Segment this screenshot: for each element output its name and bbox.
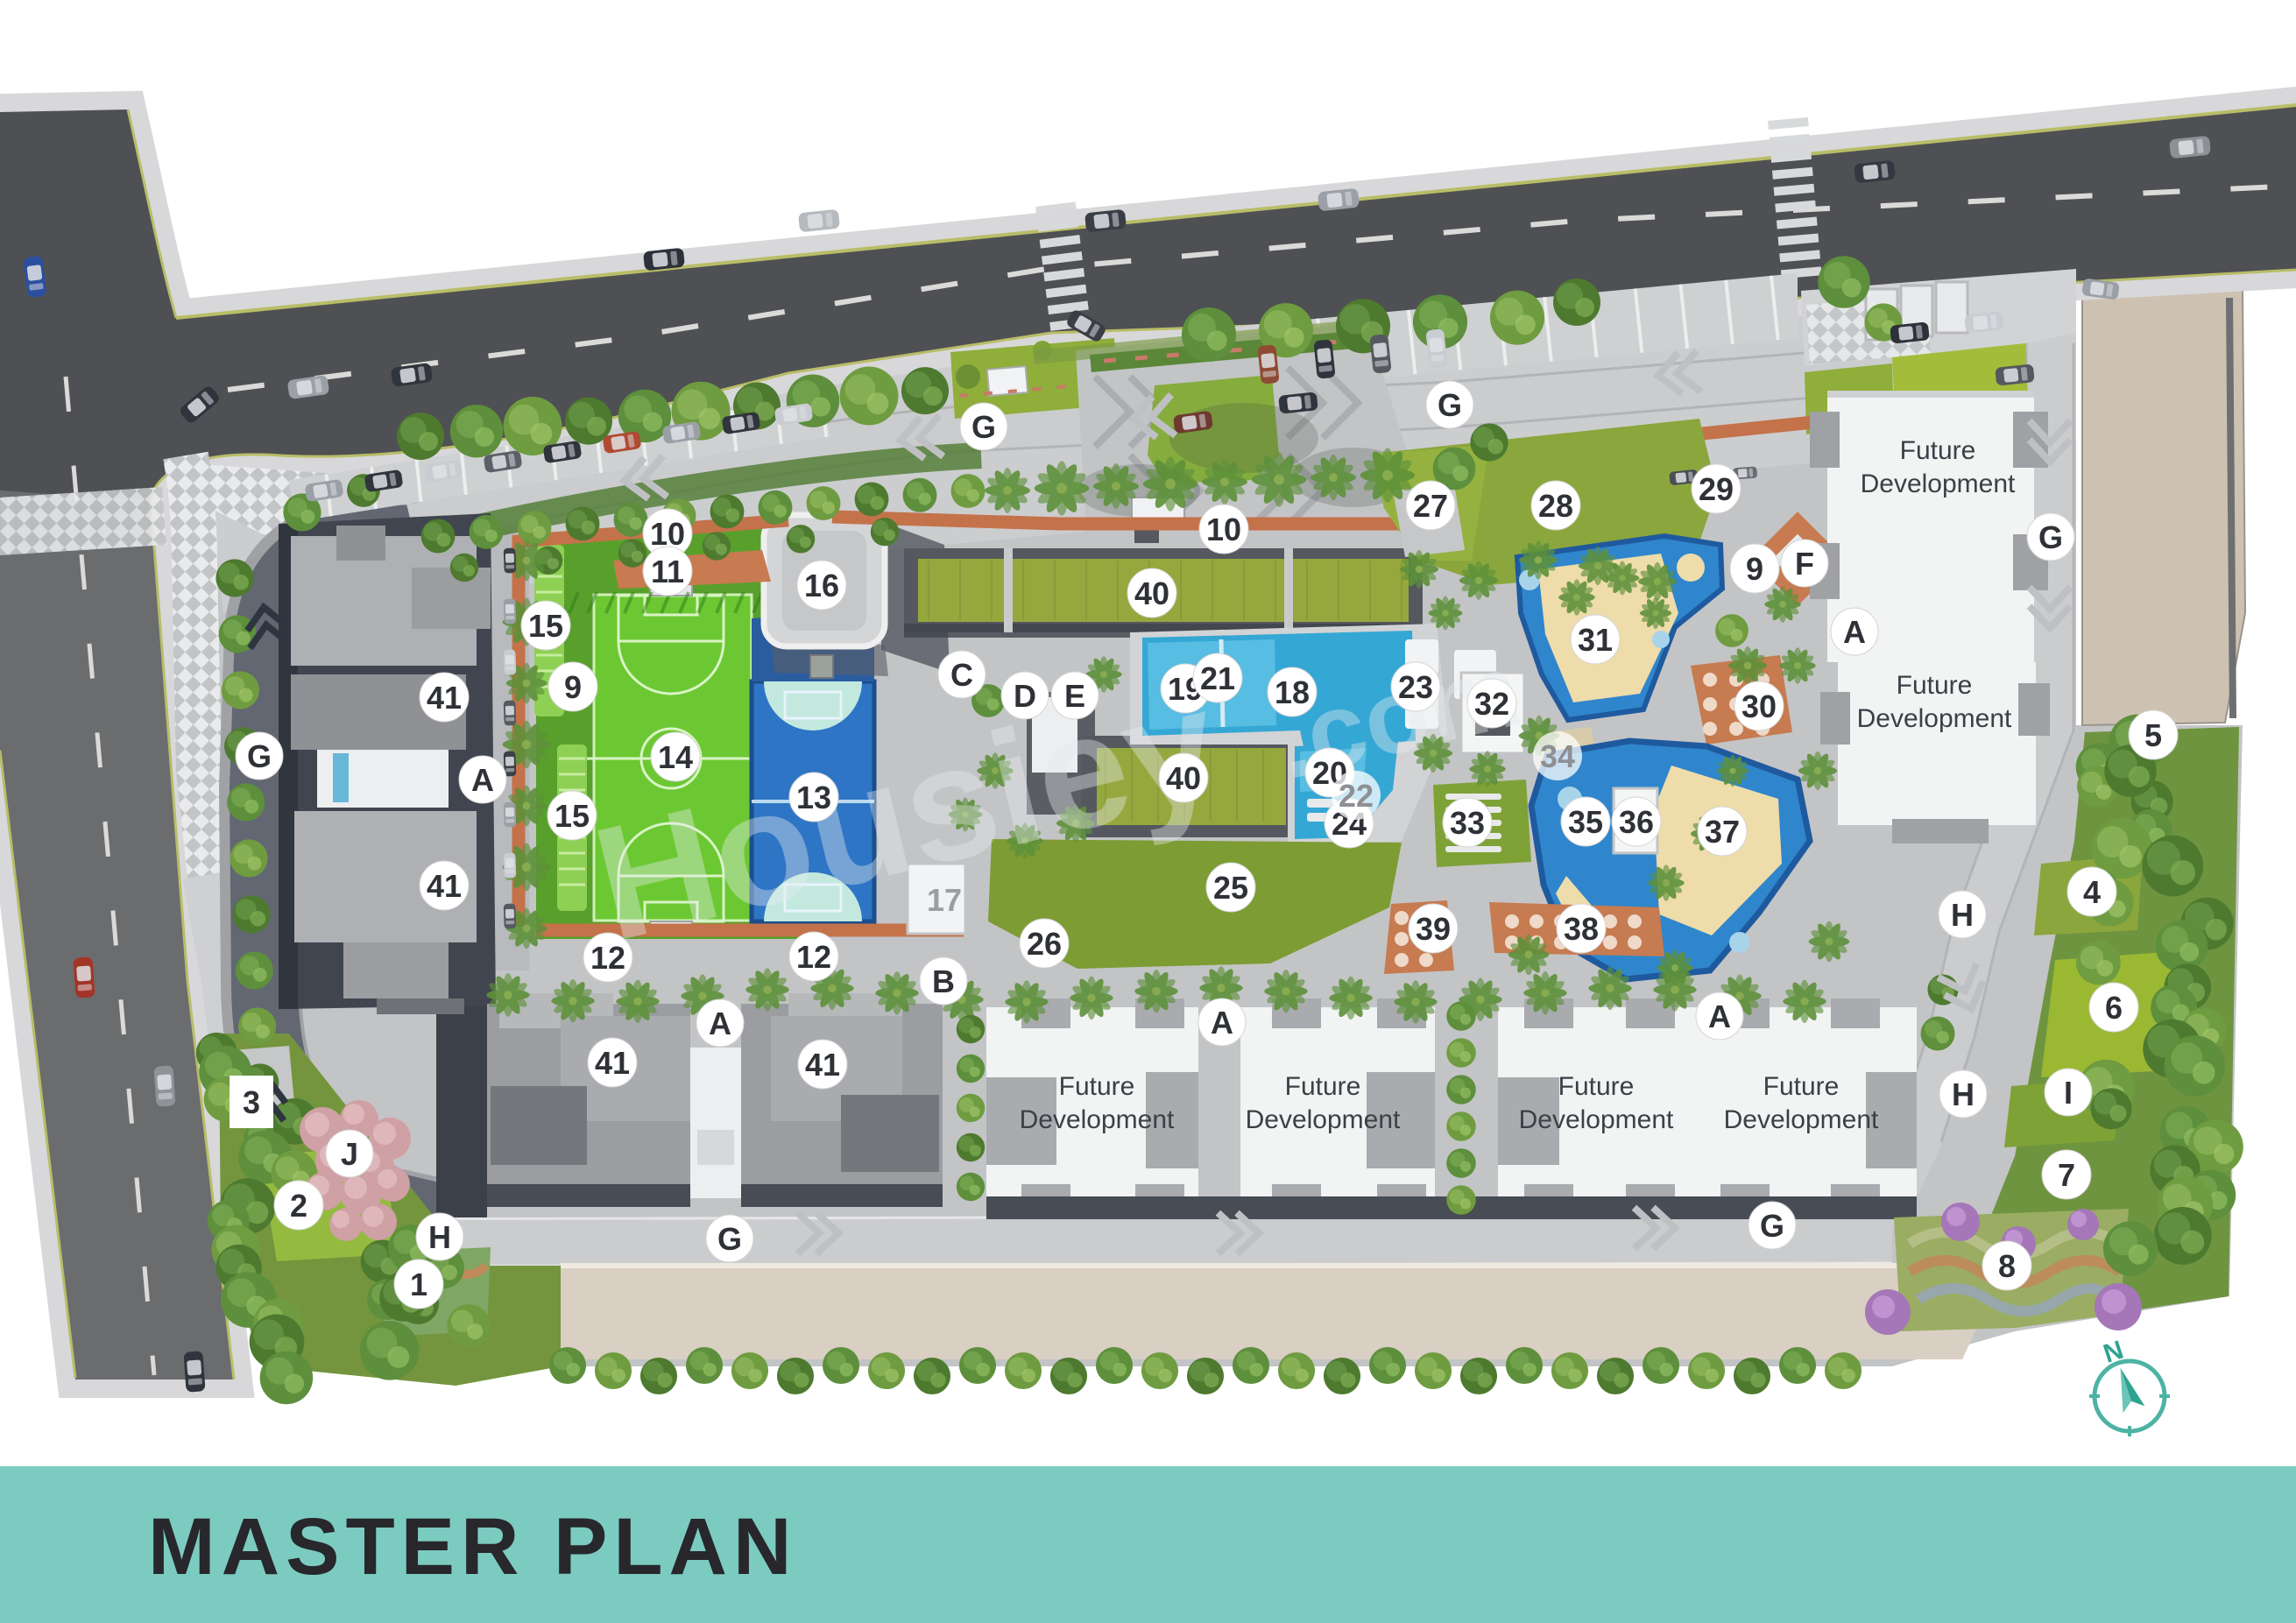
svg-text:E: E <box>1064 678 1085 714</box>
svg-text:A: A <box>1708 998 1731 1034</box>
svg-text:33: 33 <box>1450 805 1485 841</box>
svg-text:9: 9 <box>1746 551 1763 587</box>
svg-text:H: H <box>1951 897 1974 933</box>
svg-text:6: 6 <box>2105 990 2123 1026</box>
svg-text:Future: Future <box>1900 436 1976 465</box>
svg-text:12: 12 <box>590 940 625 976</box>
svg-text:17: 17 <box>927 882 962 918</box>
svg-text:Future: Future <box>1059 1072 1135 1101</box>
svg-text:A: A <box>1211 1005 1233 1041</box>
svg-text:7: 7 <box>2058 1157 2075 1193</box>
svg-text:39: 39 <box>1416 911 1451 947</box>
svg-text:35: 35 <box>1568 804 1603 840</box>
svg-text:38: 38 <box>1564 911 1599 947</box>
svg-text:18: 18 <box>1275 674 1310 710</box>
svg-text:34: 34 <box>1540 738 1575 774</box>
svg-text:1: 1 <box>410 1267 427 1302</box>
svg-text:26: 26 <box>1027 926 1062 962</box>
svg-text:H: H <box>1952 1076 1975 1112</box>
svg-text:5: 5 <box>2144 717 2162 753</box>
svg-text:40: 40 <box>1166 760 1201 796</box>
svg-text:41: 41 <box>595 1045 630 1081</box>
svg-text:4: 4 <box>2083 874 2101 910</box>
svg-text:A: A <box>709 1006 731 1041</box>
svg-text:9: 9 <box>564 669 582 705</box>
svg-text:J: J <box>341 1136 358 1172</box>
svg-text:A: A <box>471 762 494 798</box>
svg-text:37: 37 <box>1705 814 1740 850</box>
svg-text:Development: Development <box>1246 1105 1401 1134</box>
svg-text:15: 15 <box>528 608 563 644</box>
svg-text:A: A <box>1843 614 1866 650</box>
svg-text:41: 41 <box>427 680 462 716</box>
svg-text:Development: Development <box>1724 1105 1879 1134</box>
svg-text:12: 12 <box>796 939 831 975</box>
svg-text:MASTER PLAN: MASTER PLAN <box>148 1502 797 1591</box>
svg-text:13: 13 <box>796 780 831 815</box>
svg-text:G: G <box>971 409 996 445</box>
svg-text:Future: Future <box>1897 671 1973 700</box>
svg-text:21: 21 <box>1200 660 1235 696</box>
svg-text:3: 3 <box>243 1084 260 1120</box>
svg-text:B: B <box>932 963 955 999</box>
svg-text:40: 40 <box>1134 575 1169 611</box>
svg-text:28: 28 <box>1538 488 1573 524</box>
svg-text:G: G <box>2038 519 2063 555</box>
svg-text:30: 30 <box>1741 688 1777 724</box>
svg-text:27: 27 <box>1413 488 1448 524</box>
svg-text:G: G <box>1438 387 1462 423</box>
svg-text:I: I <box>2064 1075 2073 1111</box>
svg-text:8: 8 <box>1998 1248 2016 1284</box>
svg-text:F: F <box>1795 546 1814 582</box>
svg-text:D: D <box>1014 678 1036 714</box>
svg-text:14: 14 <box>658 739 693 775</box>
svg-text:Development: Development <box>1519 1105 1674 1134</box>
svg-text:G: G <box>1760 1208 1784 1244</box>
svg-text:Development: Development <box>1020 1105 1175 1134</box>
svg-text:25: 25 <box>1213 870 1248 906</box>
svg-text:29: 29 <box>1699 471 1734 507</box>
svg-text:22: 22 <box>1339 778 1374 814</box>
svg-text:Future: Future <box>1558 1072 1635 1101</box>
svg-text:32: 32 <box>1474 686 1509 722</box>
svg-text:G: G <box>717 1221 742 1257</box>
svg-text:41: 41 <box>805 1047 840 1083</box>
svg-text:Development: Development <box>1857 704 2012 733</box>
svg-text:Future: Future <box>1285 1072 1361 1101</box>
svg-text:23: 23 <box>1398 669 1433 705</box>
svg-text:G: G <box>247 738 272 774</box>
svg-text:C: C <box>950 657 973 693</box>
svg-text:Development: Development <box>1861 469 2016 498</box>
svg-text:Future: Future <box>1763 1072 1840 1101</box>
svg-text:H: H <box>428 1219 451 1255</box>
svg-text:41: 41 <box>427 868 462 904</box>
svg-text:31: 31 <box>1578 622 1613 658</box>
svg-text:15: 15 <box>555 798 590 834</box>
svg-text:36: 36 <box>1619 804 1654 840</box>
svg-text:16: 16 <box>804 568 839 603</box>
svg-text:11: 11 <box>651 554 684 589</box>
svg-text:10: 10 <box>1206 512 1241 547</box>
svg-text:2: 2 <box>290 1188 307 1224</box>
